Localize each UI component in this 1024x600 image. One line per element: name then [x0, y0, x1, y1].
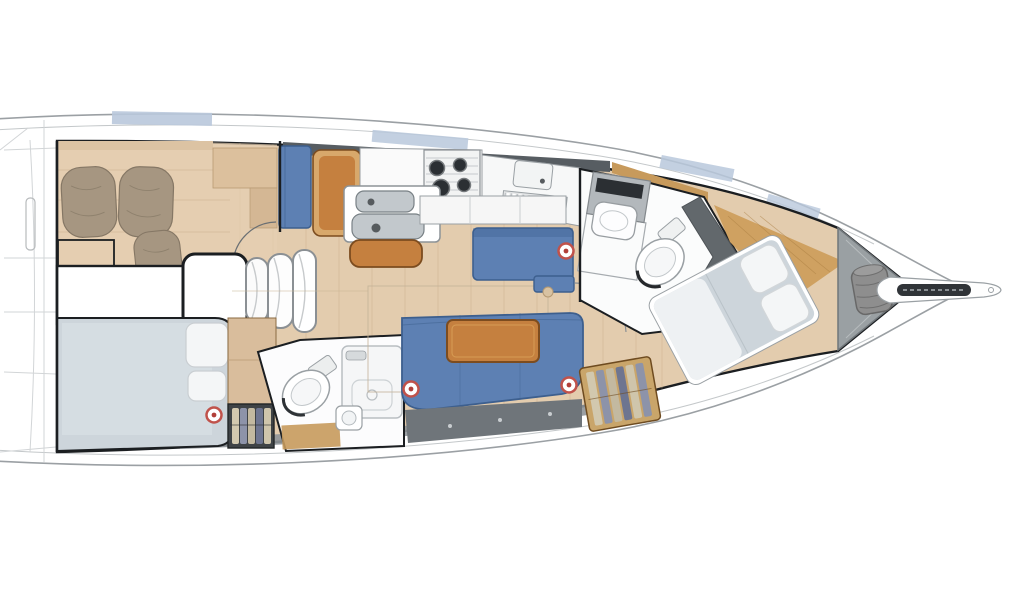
burner: [458, 179, 471, 192]
burner: [430, 161, 445, 176]
faucet: [372, 224, 381, 233]
faucet: [368, 199, 375, 206]
berth-pillow: [186, 323, 228, 367]
deck-hatch: [112, 111, 212, 126]
shower-mixer: [346, 351, 366, 360]
salon-table: [447, 320, 539, 362]
berth-pillow: [188, 371, 226, 401]
deck-fitting-marker: [559, 244, 574, 259]
deck-fitting-marker: [207, 408, 222, 423]
small-sink: [513, 160, 554, 190]
yacht-floor-plan: [0, 0, 1024, 600]
berth-pillow: [60, 166, 118, 239]
deck-fitting-marker: [404, 382, 419, 397]
head-teak-floor: [281, 422, 340, 449]
vanity-sink: [590, 201, 638, 241]
aft-cabin-port: [57, 318, 276, 451]
berth-pillow: [118, 166, 174, 238]
galley-worktop-board: [350, 240, 422, 267]
head-sink: [336, 406, 362, 430]
hanging-locker-forward: [579, 356, 661, 432]
plan-canvas: [0, 0, 1024, 600]
cabin-locker: [213, 148, 277, 188]
burner: [454, 159, 467, 172]
table-leg-mount: [543, 287, 553, 297]
upper-lockers: [420, 196, 566, 224]
nav-seat: [279, 146, 311, 228]
aft-trim-band: [57, 141, 213, 150]
hanging-locker: [228, 404, 274, 448]
bowsprit: [877, 277, 1001, 303]
deck-fitting-marker: [562, 378, 577, 393]
